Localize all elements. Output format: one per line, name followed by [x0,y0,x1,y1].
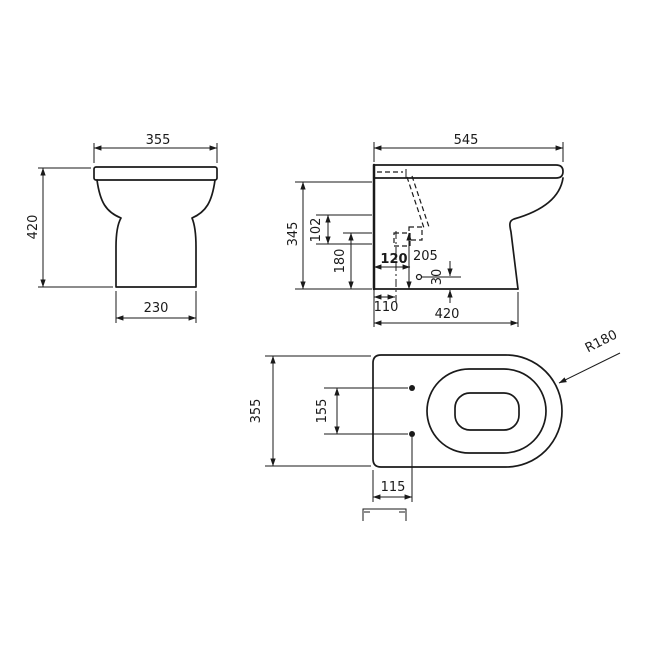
dim-side-inlet-height: 180 [333,233,372,289]
fixing-hole-top [409,385,415,391]
side-view: 545 345 102 180 120 205 [286,133,563,327]
dim-label-fixing-spacing: 155 [315,399,330,424]
dim-label-front-base: 230 [144,301,169,316]
bracket-outline [363,509,406,521]
dim-label-soil-height: 205 [413,249,438,264]
radius-leader-line [559,353,620,383]
front-body-outline [97,180,215,287]
dim-label-inlet-spacing: 102 [309,218,324,243]
side-hidden-details [377,169,461,302]
dim-front-height: 420 [26,168,113,287]
soil-pipe-position-bracket [363,509,406,521]
dim-label-base-depth: 420 [435,307,460,322]
dim-label-radius: R180 [583,328,620,357]
dim-label-pan-height: 345 [286,222,301,247]
dim-side-pan-height: 345 [286,182,372,289]
dim-side-soil-setout: 120 [374,252,410,267]
dim-label-front-width: 355 [146,133,171,148]
dim-plan-width: 355 [249,356,371,466]
dim-label-inlet-height: 180 [333,249,348,274]
dim-side-outlet-offset: 30 [430,261,450,303]
plan-seat-ring [427,369,546,453]
dim-label-side-depth: 545 [454,133,479,148]
dim-label-soil-setout: 120 [380,252,407,267]
front-view: 355 420 230 [26,133,217,323]
front-seat-slab [94,167,217,180]
technical-drawing-page: 355 420 230 [0,0,650,650]
side-front-profile [510,178,563,289]
dim-label-outlet-offset: 30 [430,269,445,286]
front-outline [94,167,217,287]
dim-side-inlet-spacing: 102 [309,215,372,244]
dim-front-width: 355 [94,133,217,163]
dim-plan-fixing-spacing: 155 [315,388,408,434]
toilet-dimension-drawing: 355 420 230 [0,0,650,650]
dim-plan-fixing-setout: 115 [373,437,412,502]
dim-side-depth: 545 [374,133,563,162]
dim-label-plan-width: 355 [249,399,264,424]
plan-outline [373,355,562,467]
outlet-point-marker [417,275,422,280]
dim-label-fixing-setout-plan: 115 [381,480,406,495]
dim-front-base-width: 230 [116,291,196,323]
hidden-soil-connector-step [409,227,422,240]
dim-plan-radius: R180 [559,328,620,383]
dim-side-fixing-setout: 110 [374,297,399,315]
dim-label-fixing-setout: 110 [374,300,399,315]
side-outline [374,165,563,289]
plan-pan-outline [373,355,562,467]
fixing-hole-bottom [409,431,415,437]
dim-label-front-height: 420 [26,215,41,240]
plan-view: 155 355 115 R180 [249,328,620,521]
plan-bowl-opening [455,393,519,430]
